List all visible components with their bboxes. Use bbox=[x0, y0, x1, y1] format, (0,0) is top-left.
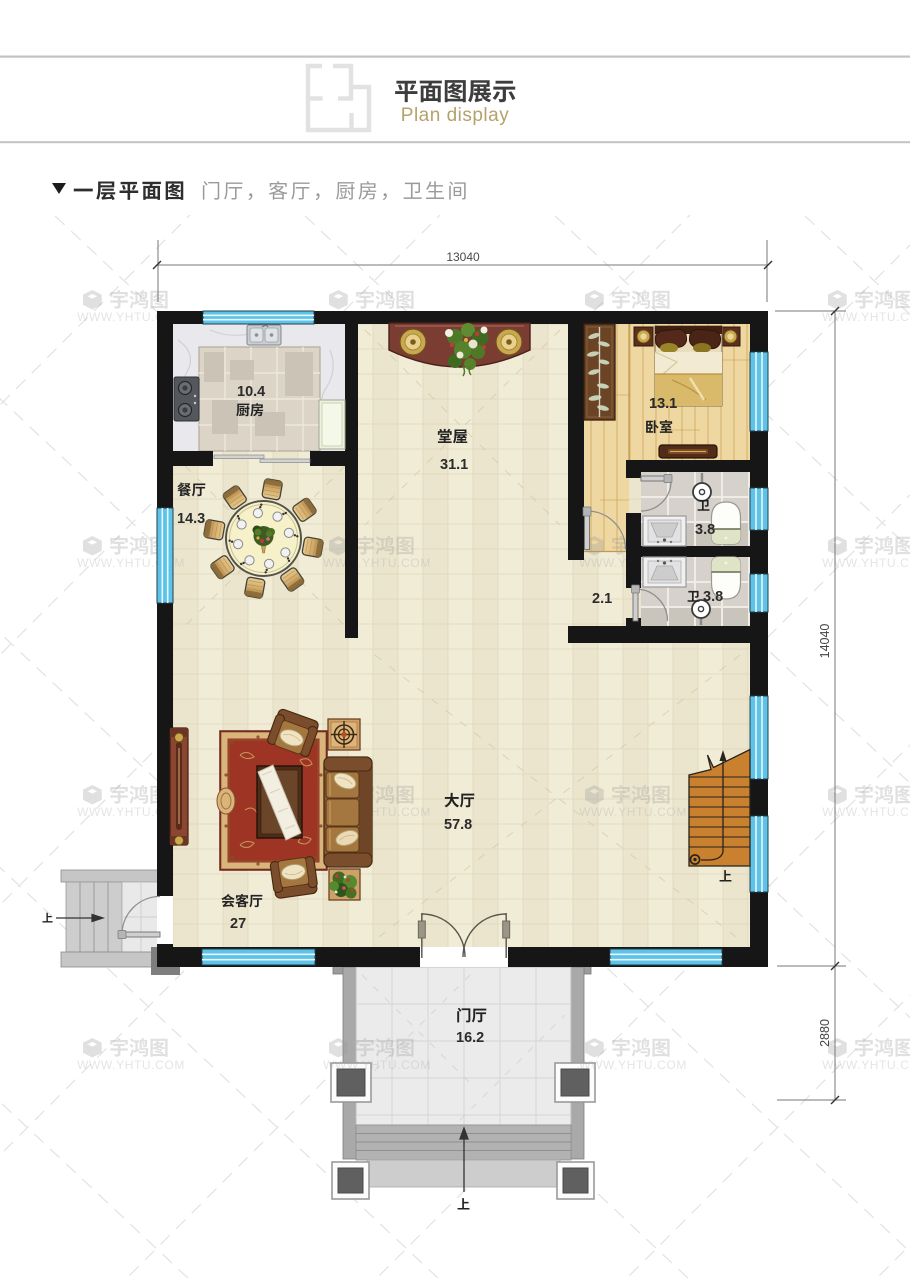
svg-text:14.3: 14.3 bbox=[177, 511, 205, 527]
svg-text:Plan display: Plan display bbox=[401, 105, 509, 126]
svg-text:14040: 14040 bbox=[818, 624, 832, 659]
svg-text:WWW.YHTU.COM: WWW.YHTU.COM bbox=[323, 1058, 431, 1072]
svg-text:3.8: 3.8 bbox=[695, 522, 715, 538]
svg-text:31.1: 31.1 bbox=[440, 457, 468, 473]
svg-text:WWW.YHTU.COM: WWW.YHTU.COM bbox=[579, 805, 687, 819]
svg-text:13040: 13040 bbox=[446, 250, 480, 264]
svg-text:2880: 2880 bbox=[818, 1019, 832, 1047]
svg-text:WWW.YHTU.COM: WWW.YHTU.COM bbox=[77, 1058, 185, 1072]
svg-text:10.4: 10.4 bbox=[237, 384, 265, 400]
svg-text:3.8: 3.8 bbox=[703, 589, 723, 605]
svg-text:13.1: 13.1 bbox=[649, 396, 677, 412]
svg-text:2.1: 2.1 bbox=[592, 591, 612, 607]
svg-text:16.2: 16.2 bbox=[456, 1030, 484, 1046]
svg-text:27: 27 bbox=[230, 916, 246, 932]
svg-text:WWW.YHTU.COM: WWW.YHTU.COM bbox=[323, 556, 431, 570]
svg-text:WWW.YHTU.COM: WWW.YHTU.COM bbox=[579, 1058, 687, 1072]
svg-text:57.8: 57.8 bbox=[444, 817, 472, 833]
